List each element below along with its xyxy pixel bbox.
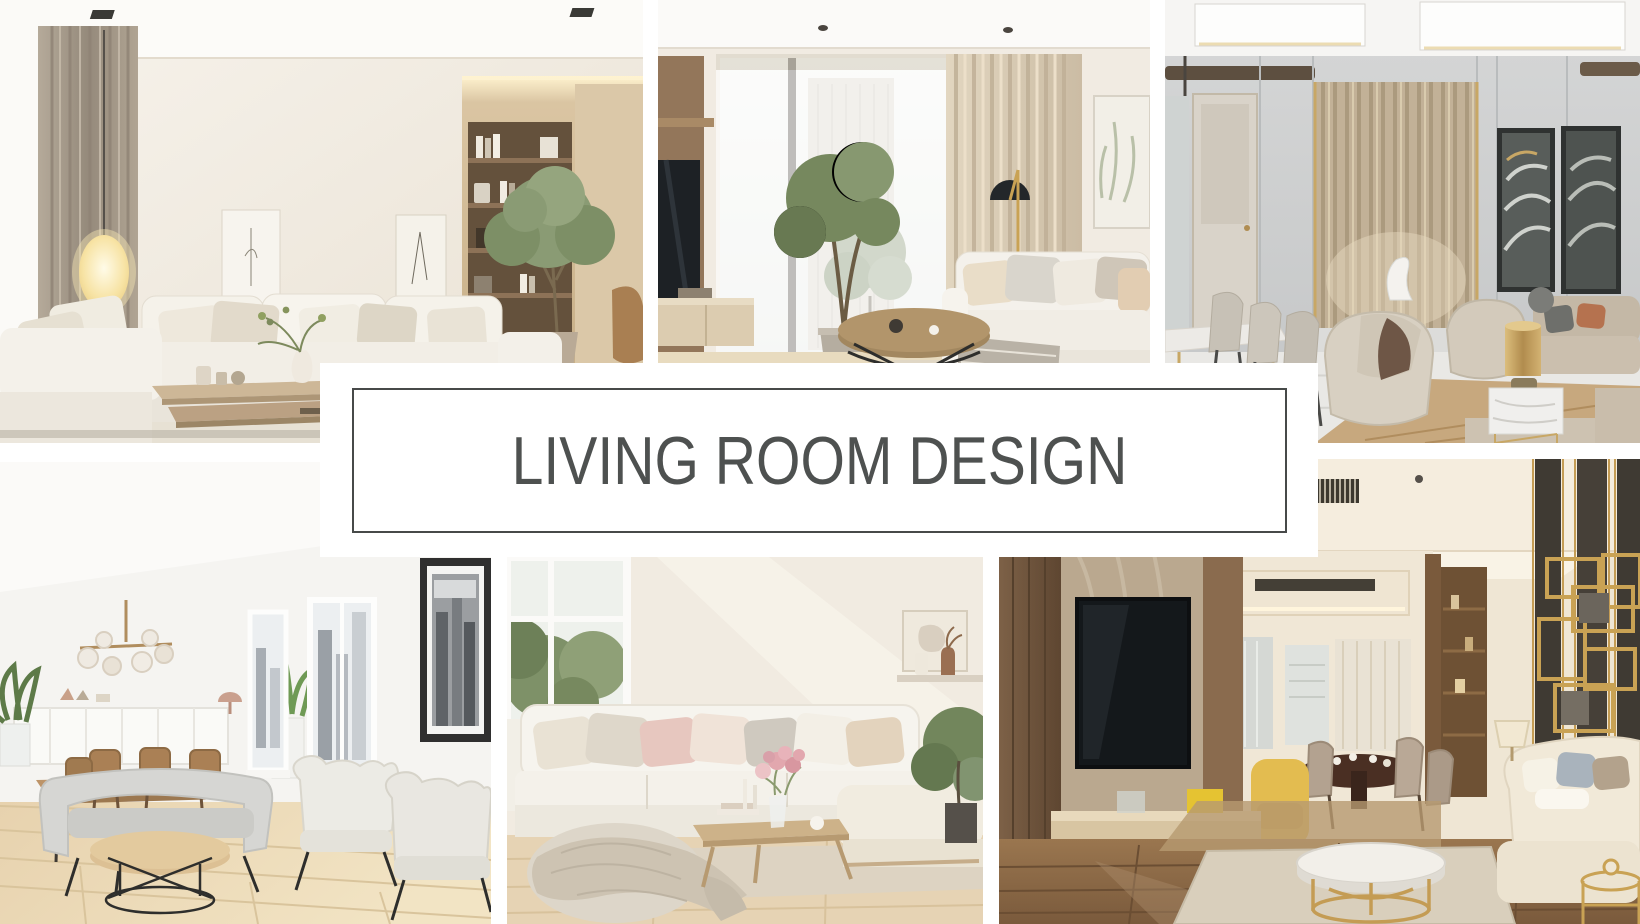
city-artwork: [420, 558, 491, 742]
door: [1165, 94, 1257, 336]
title-border: LIVING ROOM DESIGN: [352, 388, 1287, 533]
page-title: LIVING ROOM DESIGN: [512, 427, 1128, 495]
ceiling-light: [569, 8, 594, 17]
wall-art: [1094, 96, 1150, 228]
title-banner: LIVING ROOM DESIGN: [320, 363, 1318, 557]
windows: [246, 600, 378, 780]
vase: [769, 795, 787, 828]
photo-bottom-middle: [507, 557, 983, 924]
chandelier: [1165, 66, 1315, 80]
ceiling-light: [90, 10, 115, 19]
mug: [810, 816, 824, 830]
ceiling: [658, 0, 1150, 48]
scene-cozy-white-sectional: [507, 557, 983, 924]
collage-canvas: LIVING ROOM DESIGN: [0, 0, 1640, 924]
